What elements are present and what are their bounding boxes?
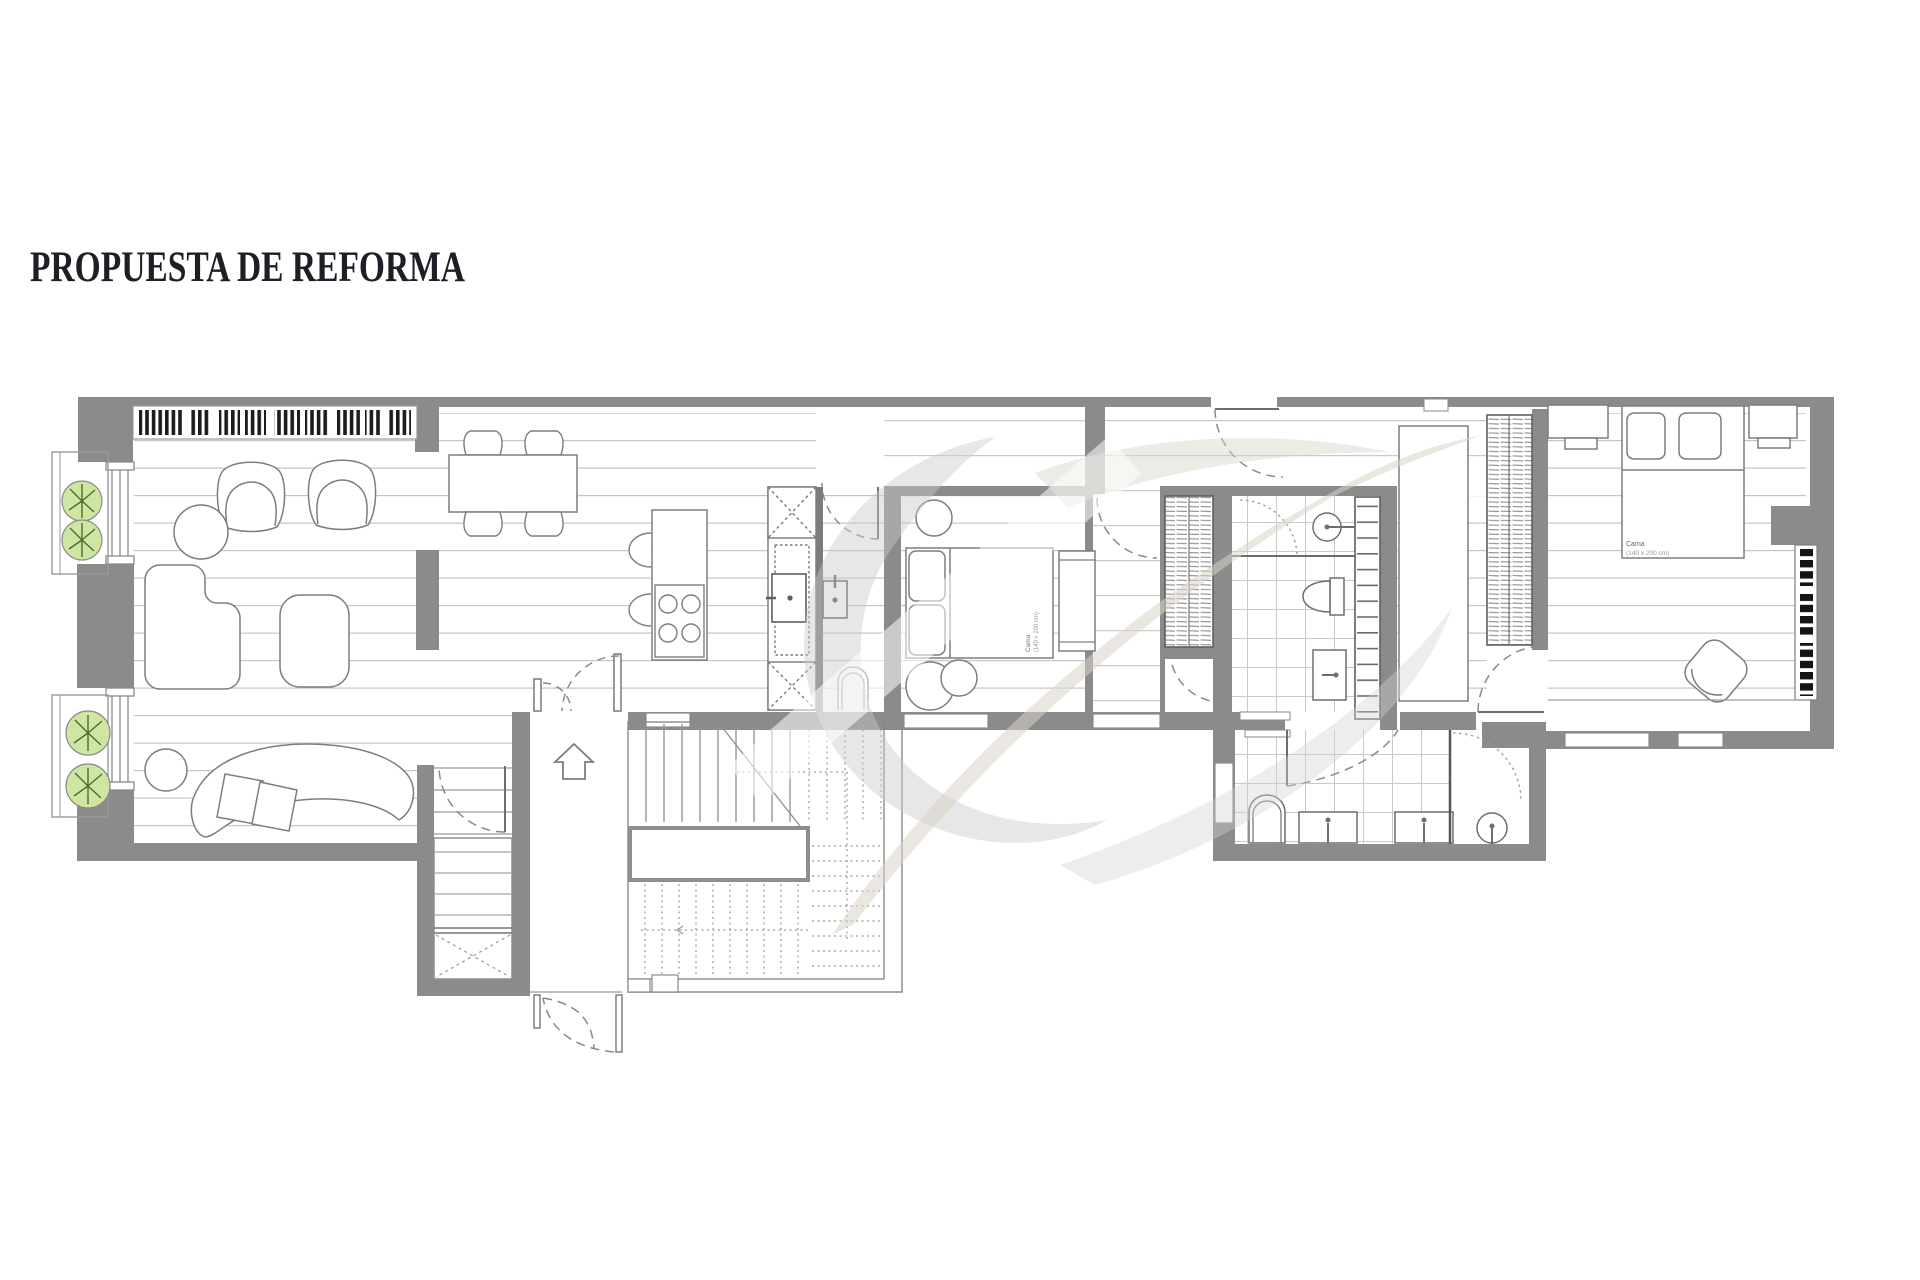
svg-text:PROPUESTA DE REFORMA: PROPUESTA DE REFORMA bbox=[30, 244, 465, 291]
svg-text:(140 x 200 cm): (140 x 200 cm) bbox=[1034, 612, 1040, 652]
svg-text:Cama: Cama bbox=[1025, 634, 1032, 652]
svg-text:Cama: Cama bbox=[1626, 541, 1645, 548]
svg-text:(140 x 200 cm): (140 x 200 cm) bbox=[1626, 550, 1669, 557]
